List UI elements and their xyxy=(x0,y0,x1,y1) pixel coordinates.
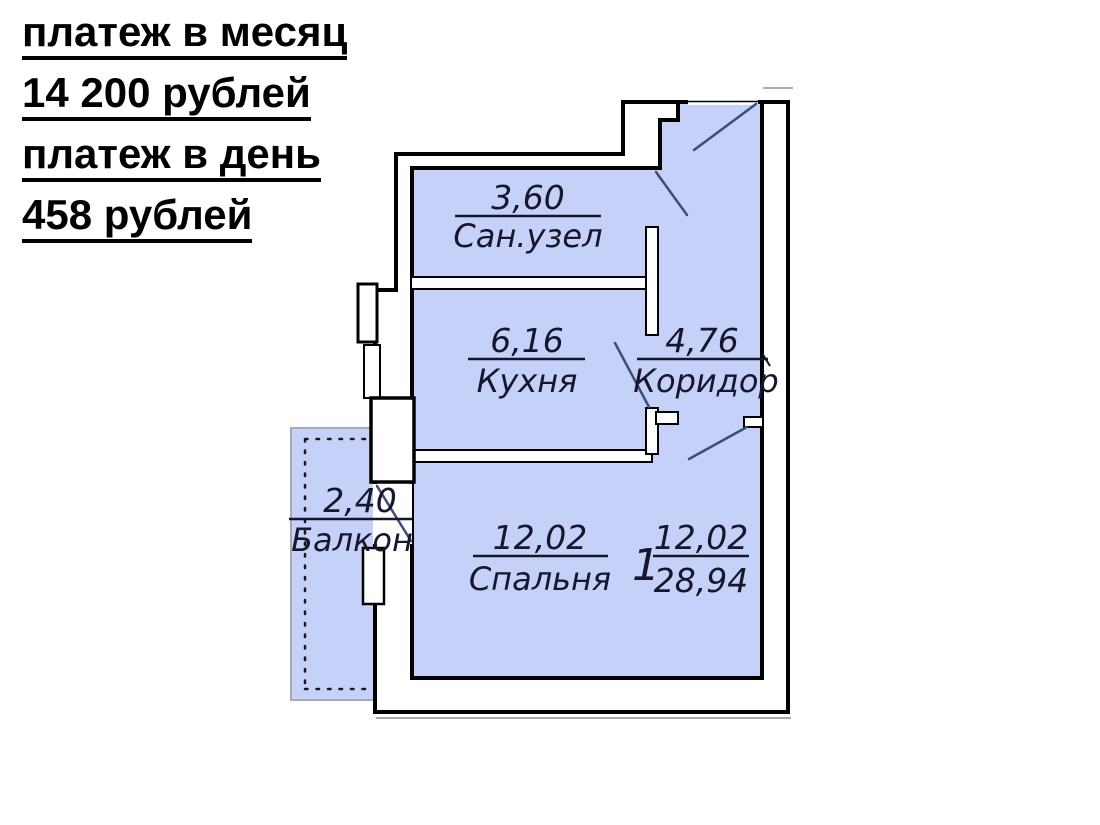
wall-bathroom-corridor xyxy=(646,227,658,335)
window-kitchen xyxy=(364,345,380,398)
kitchen-name: Кухня xyxy=(477,362,578,400)
wall-bathroom-south xyxy=(411,277,650,289)
unit-living-area: 12,02 xyxy=(654,518,748,557)
balcony-name: Балкон xyxy=(291,521,413,559)
door-jamb-bedroom xyxy=(744,417,763,427)
balcony-area-value: 2,40 xyxy=(323,481,396,520)
floor-plan: 3,60 Сан.узел 6,16 Кухня 4,76 Коридор 12… xyxy=(0,0,1100,825)
wall-bedroom-north xyxy=(411,450,652,462)
corridor-name: Коридор xyxy=(633,362,778,400)
wall-stub-corridor xyxy=(656,412,678,424)
unit-total-area: 28,94 xyxy=(654,561,748,600)
corridor-area-value: 4,76 xyxy=(665,321,738,360)
bedroom-name: Спальня xyxy=(469,560,611,598)
page: { "payment": { "monthly_label": "платеж … xyxy=(0,0,1100,825)
bathroom-area-value: 3,60 xyxy=(491,178,564,217)
wall-pier-upper xyxy=(358,284,377,342)
kitchen-area-value: 6,16 xyxy=(490,321,563,360)
wall-pier-balcony xyxy=(371,398,414,482)
bathroom-name: Сан.узел xyxy=(453,217,602,255)
bedroom-area-value: 12,02 xyxy=(493,518,587,557)
